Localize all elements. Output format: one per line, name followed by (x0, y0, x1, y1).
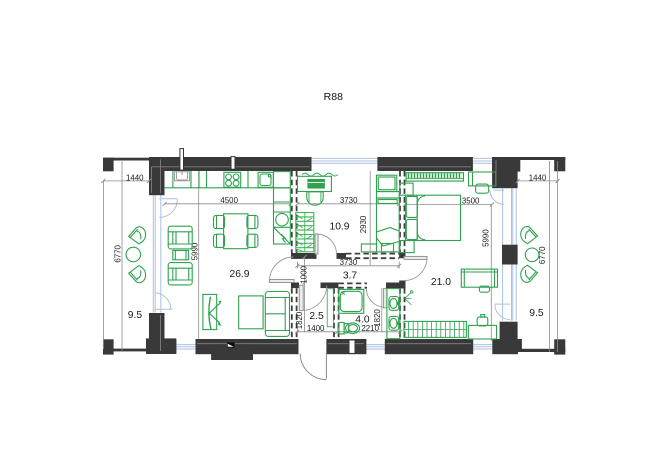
svg-text:1440: 1440 (529, 173, 547, 182)
svg-text:1000: 1000 (300, 265, 309, 283)
svg-text:6770: 6770 (538, 246, 547, 264)
svg-text:2930: 2930 (359, 215, 368, 233)
svg-text:3730: 3730 (340, 258, 358, 267)
svg-text:1440: 1440 (126, 173, 144, 182)
svg-text:1820: 1820 (373, 309, 382, 327)
svg-text:3500: 3500 (462, 197, 480, 206)
svg-text:9.5: 9.5 (128, 310, 143, 321)
svg-text:R88: R88 (324, 91, 343, 103)
svg-text:3730: 3730 (340, 196, 358, 205)
svg-text:2.5: 2.5 (309, 311, 324, 322)
svg-text:26.9: 26.9 (229, 269, 249, 280)
svg-text:1400: 1400 (307, 324, 325, 333)
svg-text:21.0: 21.0 (431, 277, 451, 288)
svg-text:9.5: 9.5 (529, 308, 544, 319)
svg-text:5990: 5990 (481, 229, 490, 247)
svg-text:3.7: 3.7 (343, 270, 358, 281)
svg-text:4500: 4500 (220, 196, 238, 205)
svg-text:1820: 1820 (295, 311, 304, 329)
svg-text:10.9: 10.9 (329, 222, 349, 233)
svg-text:6770: 6770 (113, 245, 122, 263)
